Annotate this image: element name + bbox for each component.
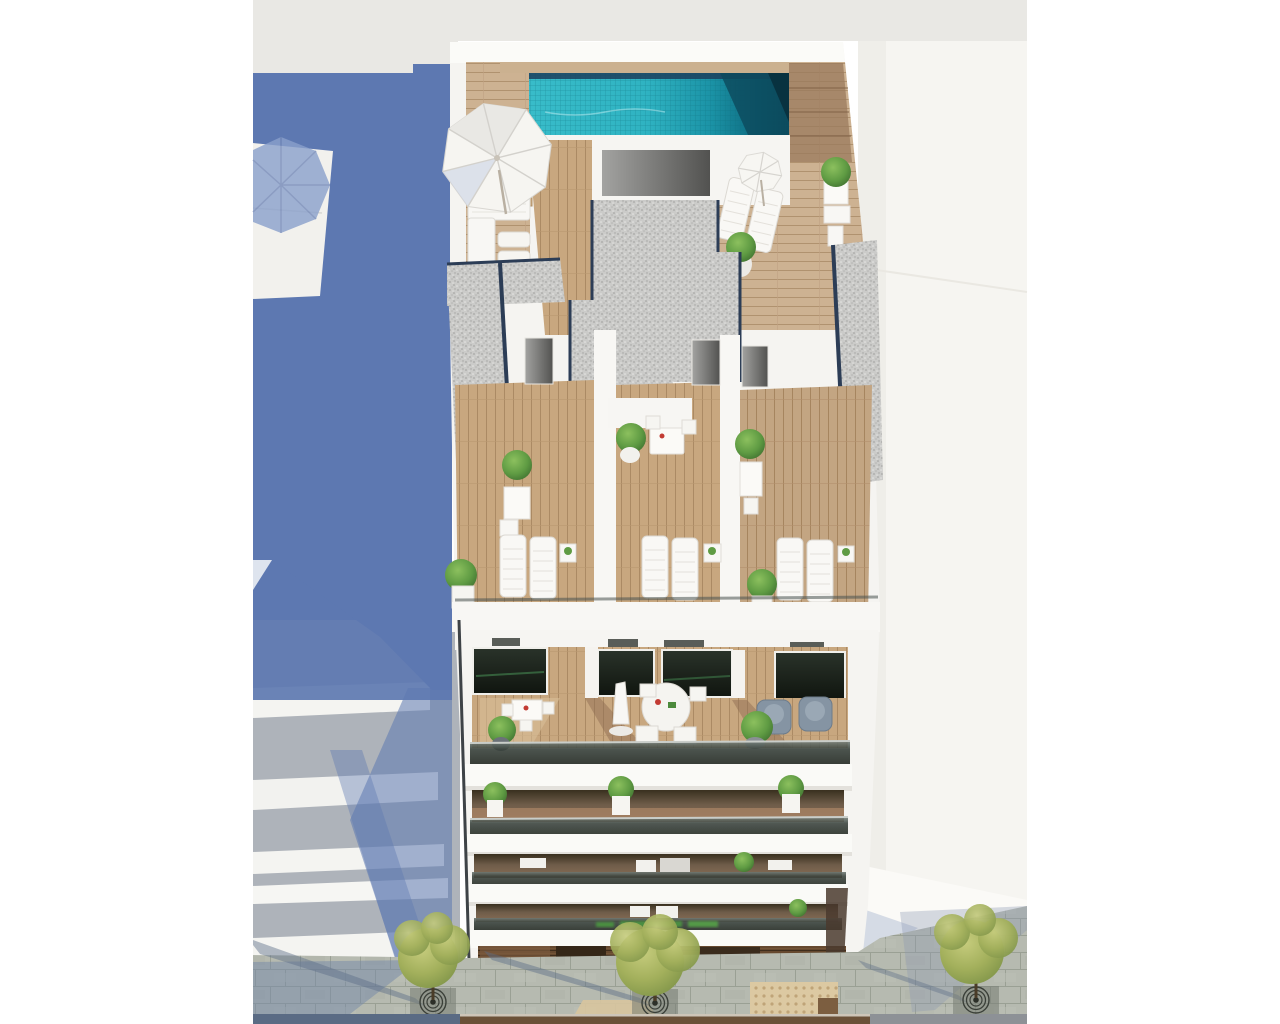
terrace-parapet	[452, 602, 880, 632]
table-plant	[842, 548, 850, 556]
f1-pillar	[732, 650, 745, 700]
table-item-green	[668, 702, 676, 708]
terrace-lounger	[642, 536, 668, 598]
f3-stool	[636, 860, 656, 872]
bistro-table	[824, 206, 850, 223]
glass-door	[775, 652, 845, 699]
roof-parapet	[450, 42, 845, 63]
curb-highlight	[460, 1014, 870, 1017]
glass-balustrade	[472, 872, 846, 886]
dining-chair	[543, 702, 554, 714]
roof-lounger-a	[498, 232, 530, 247]
terrace-divider-2	[720, 335, 740, 630]
glass-balustrade	[470, 742, 850, 766]
white-pot	[612, 796, 630, 815]
sign-blur-segment	[596, 922, 614, 927]
terrace-stool	[744, 498, 758, 514]
f3-furniture	[768, 860, 792, 870]
table-item-red	[660, 434, 665, 439]
balcony-bush	[734, 852, 754, 872]
f3-table	[660, 858, 690, 872]
white-pot	[487, 800, 503, 817]
terrace-bush	[747, 569, 777, 599]
tree-foliage	[964, 904, 996, 936]
sign-blur-segment	[688, 921, 718, 927]
f1-pillar	[585, 647, 598, 699]
white-pot	[782, 794, 800, 813]
bistro-table	[650, 428, 684, 454]
neighbor-building-right	[858, 41, 1027, 965]
rooftop-pool	[529, 73, 789, 135]
glass-balustrade	[470, 818, 848, 836]
bistro-chair	[646, 416, 660, 429]
terrace-lounger	[672, 538, 698, 600]
road-strip	[253, 1014, 1027, 1024]
dining-chair	[520, 720, 532, 731]
plant-stand	[740, 462, 762, 496]
balcony-floor-3	[468, 852, 848, 906]
planter-bush	[821, 157, 851, 187]
terrace-lounger	[807, 540, 833, 602]
tree-foliage	[421, 912, 453, 944]
round-pot	[620, 447, 640, 463]
terrace-divider-1	[594, 330, 616, 630]
terrace-door-3	[742, 346, 768, 387]
table-item-red	[655, 699, 661, 705]
plant-stand	[504, 487, 530, 519]
table-plant	[564, 547, 572, 555]
terrace-door-2	[692, 340, 720, 385]
balcony-bush	[789, 899, 807, 917]
balcony-floor-1	[455, 630, 878, 791]
dining-chair	[502, 704, 513, 716]
table-chair	[690, 687, 706, 701]
architectural-render	[0, 0, 1280, 1024]
table-item-red	[524, 706, 529, 711]
bistro-chair	[682, 420, 696, 434]
vent-grille	[492, 638, 520, 646]
vent-grille	[608, 639, 638, 647]
bistro-chair	[828, 226, 843, 246]
terrace-lounger	[777, 538, 803, 600]
terrace-door-1	[525, 338, 553, 384]
tactile-dark-tile	[818, 998, 838, 1015]
road-left	[253, 1014, 460, 1024]
table-plant	[708, 547, 716, 555]
armchair-cushion	[805, 701, 825, 721]
vent-grille	[664, 640, 704, 648]
f3-furniture	[520, 858, 546, 868]
parasol-base	[609, 726, 633, 736]
roof-deck-top-strip	[500, 62, 790, 73]
f4-chair	[630, 906, 650, 917]
terrace-lounger	[530, 537, 556, 599]
main-building	[429, 42, 883, 962]
terrace-bush	[735, 429, 765, 459]
table-stool	[636, 726, 658, 743]
corner-sofa-side	[468, 218, 495, 266]
glass-door	[473, 648, 547, 694]
terrace-bush	[502, 450, 532, 480]
terrace-chair	[500, 520, 518, 536]
road-right	[870, 1014, 1027, 1024]
neighbor-building-left	[253, 560, 460, 962]
stair-bulkhead	[602, 150, 710, 196]
render-canvas	[0, 0, 1280, 1024]
table-chair	[640, 684, 656, 697]
tree-foliage	[642, 914, 678, 950]
terrace-lounger	[500, 535, 526, 597]
